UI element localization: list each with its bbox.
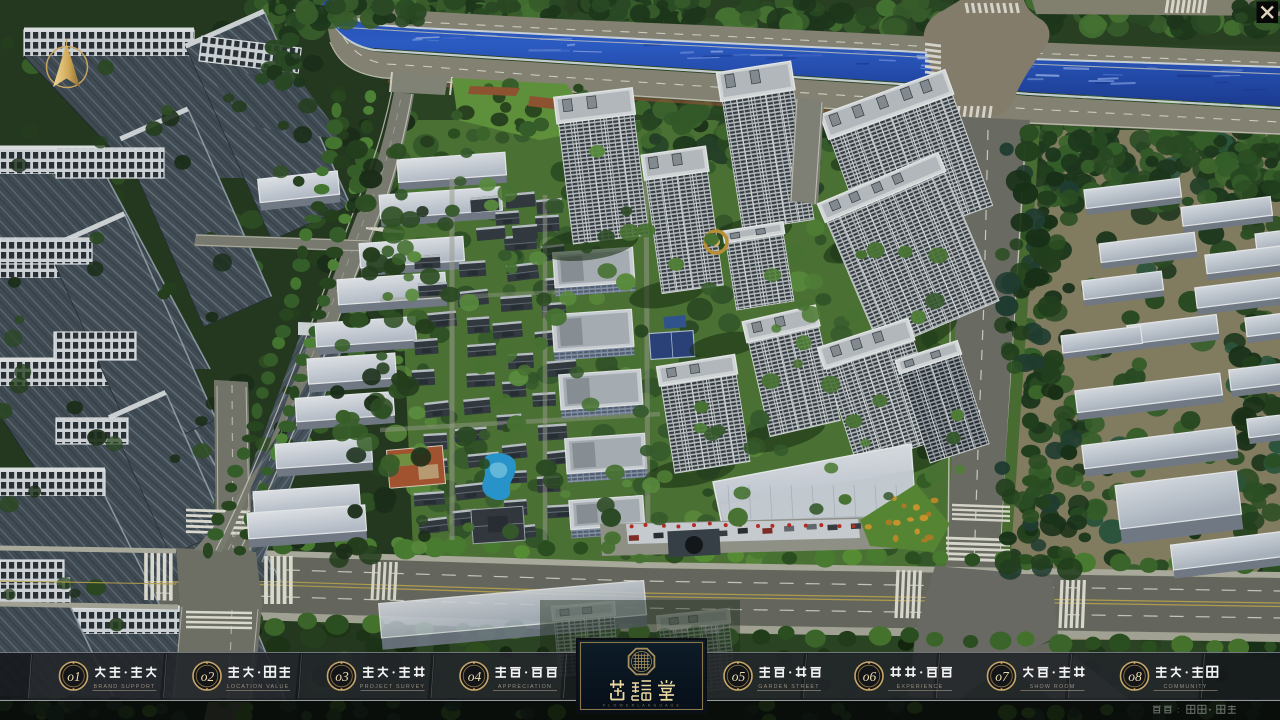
svg-text:EXPERIENCE: EXPERIENCE	[897, 684, 944, 690]
svg-text:BRAND SUPPORT: BRAND SUPPORT	[94, 684, 156, 690]
svg-text:o7: o7	[995, 669, 1010, 684]
svg-text:o1: o1	[67, 669, 81, 684]
svg-text:COMMUNITY: COMMUNITY	[1163, 684, 1207, 690]
svg-text:LOCATION VALUE: LOCATION VALUE	[227, 684, 290, 690]
svg-text:PROJECT SURVEY: PROJECT SURVEY	[360, 684, 425, 690]
svg-text::: :	[1177, 705, 1179, 715]
svg-text:F L O W E R L A N G U A G E: F L O W E R L A N G U A G E	[603, 704, 680, 708]
svg-text:o4: o4	[468, 669, 482, 684]
svg-text:SHOW ROOM: SHOW ROOM	[1030, 684, 1076, 690]
svg-text:o3: o3	[335, 669, 349, 684]
svg-text:o2: o2	[201, 669, 215, 684]
svg-text:o5: o5	[732, 669, 746, 684]
svg-text:o6: o6	[863, 669, 877, 684]
svg-text:APPRECIATION: APPRECIATION	[498, 684, 552, 690]
svg-text:o8: o8	[1128, 669, 1142, 684]
